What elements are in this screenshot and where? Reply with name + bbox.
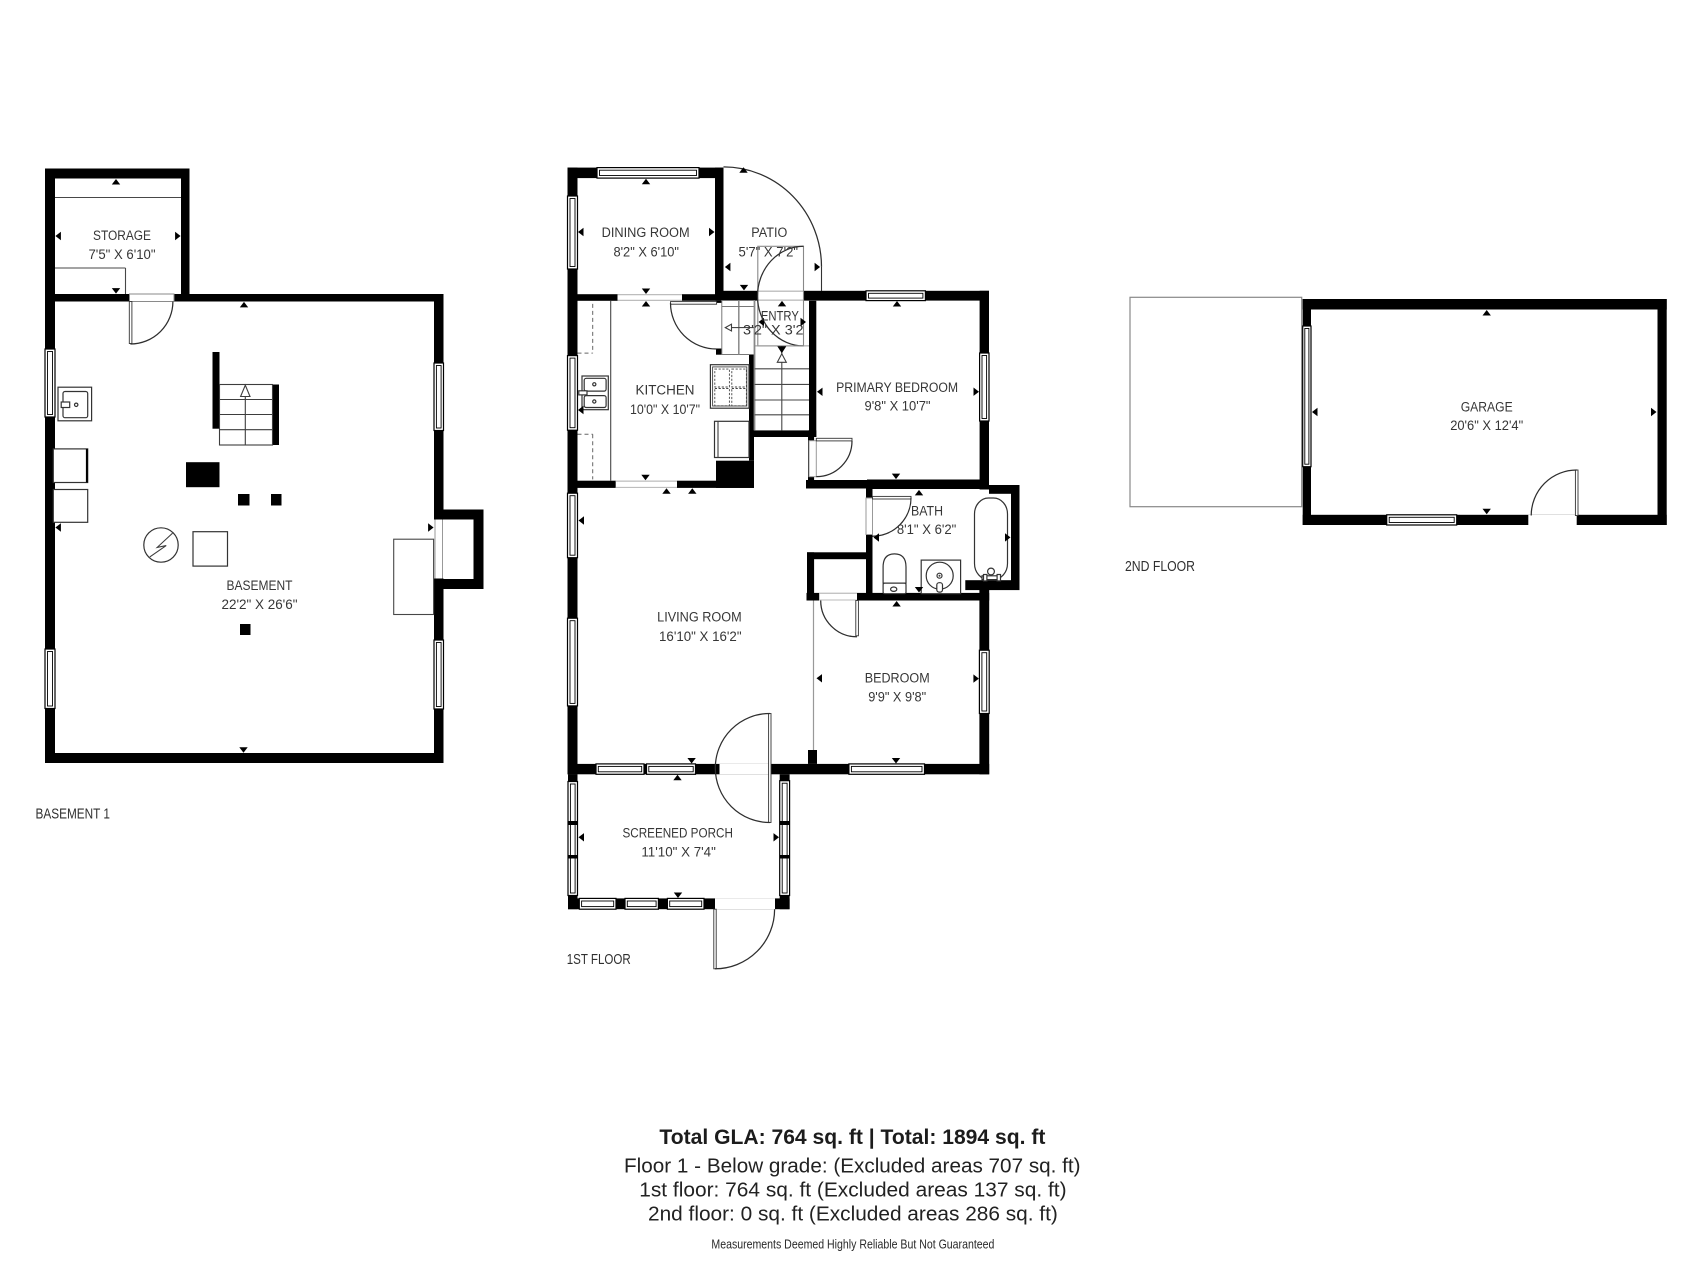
svg-text:11'10" X 7'4": 11'10" X 7'4" bbox=[641, 844, 716, 859]
svg-text:1st floor: 764 sq. ft (Exclude: 1st floor: 764 sq. ft (Excluded areas 13… bbox=[639, 1180, 1066, 1202]
svg-text:22'2" X 26'6": 22'2" X 26'6" bbox=[222, 597, 298, 612]
svg-text:8'2" X 6'10": 8'2" X 6'10" bbox=[613, 245, 679, 260]
svg-text:16'10" X 16'2": 16'10" X 16'2" bbox=[659, 629, 742, 644]
svg-text:2nd floor: 0 sq. ft (Excluded: 2nd floor: 0 sq. ft (Excluded areas 286 … bbox=[648, 1204, 1058, 1226]
svg-text:BASEMENT: BASEMENT bbox=[227, 578, 293, 593]
svg-text:BATH: BATH bbox=[911, 503, 943, 518]
svg-text:SCREENED PORCH: SCREENED PORCH bbox=[622, 825, 733, 840]
svg-text:BEDROOM: BEDROOM bbox=[865, 671, 930, 686]
svg-text:PRIMARY BEDROOM: PRIMARY BEDROOM bbox=[836, 380, 958, 395]
svg-text:9'9" X 9'8": 9'9" X 9'8" bbox=[868, 690, 926, 705]
svg-text:3'2" X 3'2: 3'2" X 3'2 bbox=[743, 322, 804, 337]
svg-text:20'6" X 12'4": 20'6" X 12'4" bbox=[1450, 418, 1523, 433]
svg-text:PATIO: PATIO bbox=[751, 225, 787, 240]
svg-text:1ST FLOOR: 1ST FLOOR bbox=[567, 952, 631, 968]
svg-text:GARAGE: GARAGE bbox=[1461, 400, 1513, 415]
svg-text:2ND FLOOR: 2ND FLOOR bbox=[1125, 559, 1195, 575]
svg-text:10'0" X 10'7": 10'0" X 10'7" bbox=[630, 402, 700, 417]
svg-text:Total GLA: 764 sq. ft | Total:: Total GLA: 764 sq. ft | Total: 1894 sq. … bbox=[659, 1126, 1045, 1149]
svg-text:LIVING ROOM: LIVING ROOM bbox=[657, 609, 742, 624]
svg-text:ENTRY: ENTRY bbox=[761, 308, 799, 323]
svg-text:Measurements Deemed Highly Rel: Measurements Deemed Highly Reliable But … bbox=[711, 1237, 994, 1251]
svg-text:9'8" X 10'7": 9'8" X 10'7" bbox=[865, 398, 931, 413]
svg-text:8'1" X 6'2": 8'1" X 6'2" bbox=[897, 522, 957, 537]
svg-text:7'5" X 6'10": 7'5" X 6'10" bbox=[89, 247, 156, 262]
svg-text:Floor 1 - Below grade: (Exclud: Floor 1 - Below grade: (Excluded areas 7… bbox=[624, 1156, 1081, 1178]
svg-text:BASEMENT 1: BASEMENT 1 bbox=[36, 807, 111, 823]
svg-text:5'7" X 7'2": 5'7" X 7'2" bbox=[739, 245, 799, 260]
svg-text:STORAGE: STORAGE bbox=[93, 228, 151, 243]
svg-text:DINING ROOM: DINING ROOM bbox=[602, 225, 690, 240]
svg-text:KITCHEN: KITCHEN bbox=[636, 382, 695, 397]
